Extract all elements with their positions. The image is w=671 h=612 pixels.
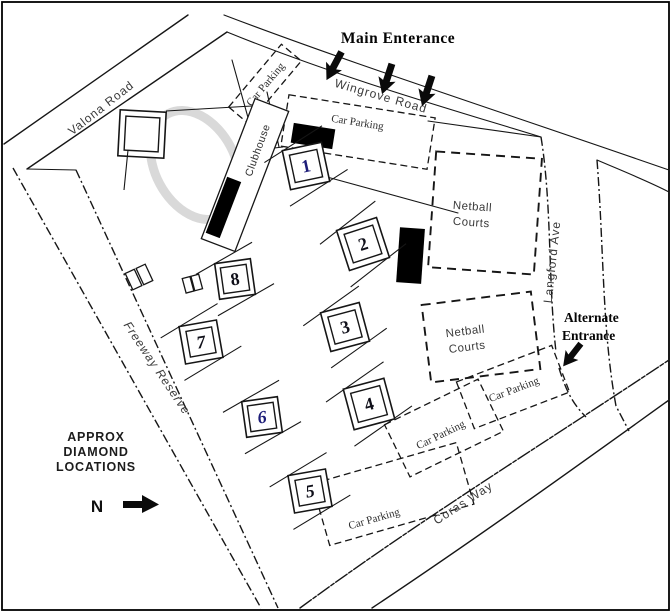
building-east-black [396,227,425,284]
legend-line-2: DIAMOND [63,445,128,459]
netball-1-label-2: Courts [452,216,490,231]
legend-line-3: LOCATIONS [56,460,136,474]
map-frame [2,2,669,610]
legend-line-1: APPROX [67,430,125,444]
alternate-entrance-label-1: Alternate [564,310,619,325]
facility-map-page: Car Parking Car Parking Clubhouse Netbal… [0,0,671,612]
main-entrance-label: Main Enterance [341,30,455,47]
facility-map: Car Parking Car Parking Clubhouse Netbal… [0,0,671,612]
diamond-unnumbered [118,110,166,158]
alternate-entrance-label-2: Entrance [562,328,615,343]
north-label: N [91,497,103,516]
